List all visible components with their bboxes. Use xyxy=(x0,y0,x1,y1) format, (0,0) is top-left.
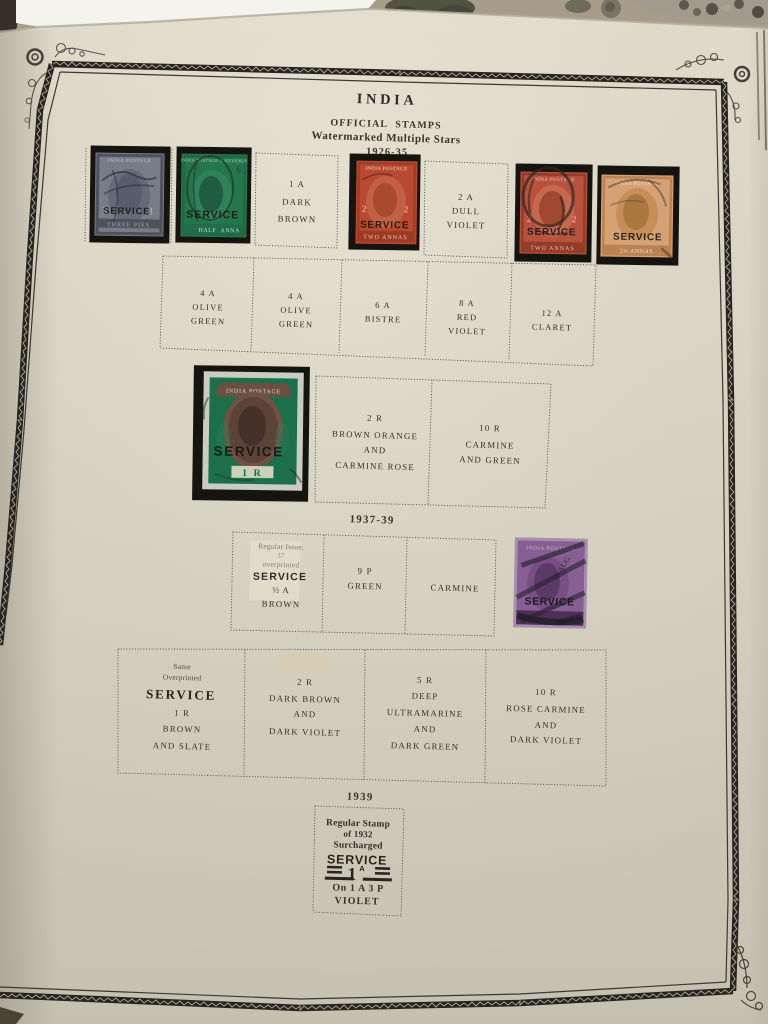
svg-text:SERVICE: SERVICE xyxy=(527,227,576,239)
svg-text:INDIA POSTAGE & REVENUE: INDIA POSTAGE & REVENUE xyxy=(181,158,248,164)
svg-text:On 1 A 3 P: On 1 A 3 P xyxy=(332,882,384,894)
svg-text:AND SLATE: AND SLATE xyxy=(153,740,212,752)
svg-text:AND GREEN: AND GREEN xyxy=(459,454,521,466)
svg-text:12 A: 12 A xyxy=(541,308,562,319)
svg-text:A: A xyxy=(359,864,365,873)
svg-text:Regular Issue,: Regular Issue, xyxy=(258,541,304,551)
svg-text:ROSE CARMINE: ROSE CARMINE xyxy=(506,703,586,715)
svg-text:GREEN: GREEN xyxy=(279,319,314,330)
svg-text:DARK: DARK xyxy=(282,197,312,208)
svg-text:SERVICE: SERVICE xyxy=(524,595,574,608)
svg-text:½ A: ½ A xyxy=(272,585,289,595)
svg-text:DEEP: DEEP xyxy=(412,691,439,702)
svg-text:10 R: 10 R xyxy=(535,687,557,698)
svg-text:2 R: 2 R xyxy=(367,413,383,424)
svg-text:VIOLET: VIOLET xyxy=(334,895,379,907)
svg-text:GREEN: GREEN xyxy=(347,581,383,592)
svg-text:8 A: 8 A xyxy=(459,298,475,308)
svg-text:SERVICE: SERVICE xyxy=(360,220,409,232)
svg-text:1 R: 1 R xyxy=(174,708,190,718)
svg-text:Overprinted: Overprinted xyxy=(163,672,202,682)
svg-text:BROWN: BROWN xyxy=(278,213,317,224)
svg-text:37: 37 xyxy=(277,552,285,560)
svg-text:AND: AND xyxy=(294,709,317,720)
svg-text:of 1932: of 1932 xyxy=(343,829,373,840)
svg-text:9 P: 9 P xyxy=(357,566,372,576)
svg-text:2: 2 xyxy=(404,204,409,214)
svg-text:VIOLET: VIOLET xyxy=(446,219,485,230)
svg-text:DARK GREEN: DARK GREEN xyxy=(391,740,460,752)
svg-text:THREE PIES: THREE PIES xyxy=(107,222,150,229)
svg-text:INDIA: INDIA xyxy=(357,91,418,109)
svg-text:SERVICE: SERVICE xyxy=(146,686,216,703)
svg-text:ANNA: ANNA xyxy=(220,228,240,234)
svg-text:DARK VIOLET: DARK VIOLET xyxy=(510,734,582,746)
svg-text:1: 1 xyxy=(347,864,357,884)
svg-text:SERVICE: SERVICE xyxy=(613,232,662,244)
svg-text:AND: AND xyxy=(414,724,437,735)
svg-text:6: 6 xyxy=(236,164,241,174)
svg-text:VIOLET: VIOLET xyxy=(448,326,486,337)
svg-text:5 R: 5 R xyxy=(417,675,433,685)
svg-text:1937-39: 1937-39 xyxy=(349,513,394,526)
svg-text:AND: AND xyxy=(535,720,558,731)
svg-text:DARK VIOLET: DARK VIOLET xyxy=(269,726,341,738)
svg-text:SERVICE: SERVICE xyxy=(327,852,388,868)
svg-text:OLIVE: OLIVE xyxy=(280,305,312,316)
svg-text:overprinted: overprinted xyxy=(263,560,300,570)
svg-text:2½ ANNAS: 2½ ANNAS xyxy=(620,248,653,255)
svg-text:Same: Same xyxy=(173,662,191,671)
svg-text:6 A: 6 A xyxy=(375,300,391,310)
svg-text:INDIA POSTAGE: INDIA POSTAGE xyxy=(365,167,408,173)
svg-text:1 A: 1 A xyxy=(289,179,305,189)
svg-text:RED: RED xyxy=(457,312,478,323)
svg-text:10 R: 10 R xyxy=(479,423,501,434)
svg-text:SERVICE: SERVICE xyxy=(103,206,150,218)
svg-text:SERVICE: SERVICE xyxy=(213,443,283,459)
svg-text:Surcharged: Surcharged xyxy=(333,840,383,851)
svg-text:BROWN: BROWN xyxy=(262,598,301,609)
svg-text:4 A: 4 A xyxy=(288,291,304,301)
svg-text:BISTRE: BISTRE xyxy=(365,314,402,325)
svg-text:1939: 1939 xyxy=(347,791,374,804)
svg-text:INDIA POSTAGE: INDIA POSTAGE xyxy=(108,159,152,165)
svg-text:HALF: HALF xyxy=(198,228,216,234)
svg-text:DULL: DULL xyxy=(452,206,481,217)
svg-text:BROWN: BROWN xyxy=(163,723,202,734)
svg-text:CARMINE: CARMINE xyxy=(465,439,514,451)
svg-text:GREEN: GREEN xyxy=(191,316,226,327)
svg-text:AND: AND xyxy=(364,445,387,456)
svg-text:1 R: 1 R xyxy=(242,468,263,479)
svg-text:2 R: 2 R xyxy=(297,677,313,687)
svg-text:DARK BROWN: DARK BROWN xyxy=(269,693,341,705)
svg-text:TWO ANNAS: TWO ANNAS xyxy=(530,246,575,253)
svg-text:OLIVE: OLIVE xyxy=(192,302,224,313)
svg-text:2: 2 xyxy=(572,214,577,224)
svg-text:CARMINE: CARMINE xyxy=(430,582,479,593)
svg-text:4 A: 4 A xyxy=(200,288,216,298)
svg-text:2: 2 xyxy=(362,204,367,214)
svg-text:ULTRAMARINE: ULTRAMARINE xyxy=(387,707,464,719)
svg-text:SERVICE: SERVICE xyxy=(186,209,239,222)
svg-text:2 A: 2 A xyxy=(458,192,474,202)
svg-text:SERVICE: SERVICE xyxy=(253,571,307,583)
svg-text:CLARET: CLARET xyxy=(532,321,573,332)
svg-text:TWO ANNAS: TWO ANNAS xyxy=(363,235,408,242)
